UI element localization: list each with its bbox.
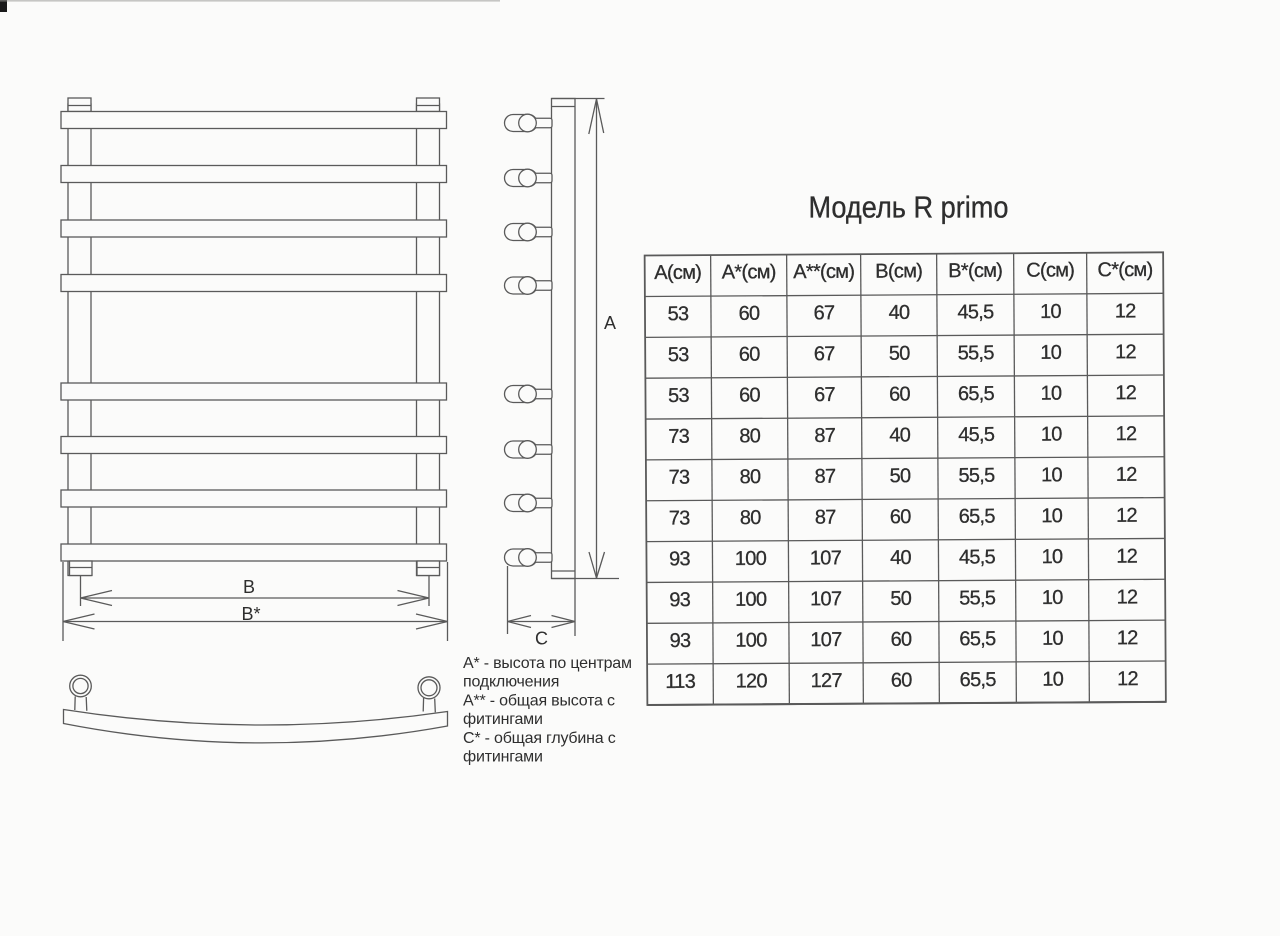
svg-text:10: 10 <box>1042 669 1064 691</box>
svg-text:60: 60 <box>889 383 911 405</box>
svg-text:40: 40 <box>888 302 910 324</box>
svg-text:А*(см): А*(см) <box>722 261 776 283</box>
svg-text:12: 12 <box>1115 341 1137 363</box>
svg-text:73: 73 <box>668 426 690 448</box>
svg-text:45,5: 45,5 <box>957 301 994 323</box>
svg-text:60: 60 <box>738 303 760 325</box>
svg-text:65,5: 65,5 <box>959 628 996 650</box>
svg-text:40: 40 <box>889 424 911 446</box>
svg-text:С(см): С(см) <box>1026 259 1074 281</box>
svg-text:60: 60 <box>891 669 913 691</box>
svg-text:12: 12 <box>1115 300 1137 322</box>
svg-text:87: 87 <box>815 507 837 529</box>
svg-text:12: 12 <box>1116 545 1138 567</box>
svg-text:12: 12 <box>1116 586 1138 608</box>
svg-text:53: 53 <box>668 385 690 407</box>
svg-text:100: 100 <box>735 589 767 611</box>
svg-text:45,5: 45,5 <box>958 424 995 446</box>
svg-text:12: 12 <box>1115 423 1137 445</box>
svg-text:55,5: 55,5 <box>958 342 995 364</box>
svg-text:10: 10 <box>1040 342 1062 364</box>
svg-text:50: 50 <box>890 588 912 610</box>
svg-text:10: 10 <box>1042 587 1064 609</box>
svg-text:65,5: 65,5 <box>958 383 995 405</box>
svg-text:107: 107 <box>810 588 842 610</box>
svg-text:67: 67 <box>813 302 835 324</box>
svg-text:55,5: 55,5 <box>959 587 996 609</box>
svg-text:127: 127 <box>811 670 843 692</box>
svg-text:10: 10 <box>1041 464 1063 486</box>
svg-text:53: 53 <box>667 303 689 325</box>
svg-text:80: 80 <box>739 466 761 488</box>
svg-text:A: A <box>604 313 616 333</box>
svg-text:10: 10 <box>1040 383 1062 405</box>
svg-text:113: 113 <box>665 671 695 693</box>
svg-text:C: C <box>535 629 548 649</box>
svg-text:В*(см): В*(см) <box>948 260 1002 282</box>
svg-text:65,5: 65,5 <box>960 669 997 691</box>
svg-text:С* - общая глубина с: С* - общая глубина с <box>463 730 616 747</box>
svg-text:Модель R primo: Модель R primo <box>809 190 1009 225</box>
svg-text:12: 12 <box>1116 464 1138 486</box>
svg-text:55,5: 55,5 <box>958 465 995 487</box>
svg-text:73: 73 <box>669 507 691 529</box>
svg-text:87: 87 <box>814 425 836 447</box>
svg-text:подключения: подключения <box>463 674 559 691</box>
svg-text:10: 10 <box>1041 423 1063 445</box>
svg-text:60: 60 <box>739 344 761 366</box>
svg-text:40: 40 <box>890 547 912 569</box>
svg-text:60: 60 <box>890 629 912 651</box>
svg-text:53: 53 <box>668 344 690 366</box>
svg-text:B: B <box>243 577 255 597</box>
svg-text:50: 50 <box>889 465 911 487</box>
svg-text:B*: B* <box>241 604 260 624</box>
svg-text:93: 93 <box>669 589 691 611</box>
svg-text:107: 107 <box>810 629 842 651</box>
svg-text:А* - высота по центрам: А* - высота по центрам <box>463 655 632 672</box>
svg-text:65,5: 65,5 <box>959 506 996 528</box>
svg-text:С*(см): С*(см) <box>1097 259 1152 281</box>
svg-text:67: 67 <box>814 384 836 406</box>
svg-text:60: 60 <box>739 384 761 406</box>
svg-text:100: 100 <box>735 548 767 570</box>
svg-text:87: 87 <box>814 466 836 488</box>
svg-text:80: 80 <box>740 507 762 529</box>
svg-text:120: 120 <box>736 670 768 692</box>
svg-text:73: 73 <box>668 467 690 489</box>
svg-text:12: 12 <box>1117 668 1139 690</box>
svg-text:10: 10 <box>1040 301 1062 323</box>
svg-text:фитингами: фитингами <box>463 749 543 766</box>
svg-text:12: 12 <box>1115 382 1137 404</box>
svg-text:В(см): В(см) <box>875 260 922 282</box>
svg-text:12: 12 <box>1116 505 1138 527</box>
svg-text:10: 10 <box>1041 546 1063 568</box>
svg-text:10: 10 <box>1041 505 1063 527</box>
svg-text:А** - общая высота с: А** - общая высота с <box>463 692 615 709</box>
svg-text:93: 93 <box>669 548 691 570</box>
svg-text:100: 100 <box>735 629 767 651</box>
svg-text:60: 60 <box>890 506 912 528</box>
svg-text:12: 12 <box>1117 627 1139 649</box>
svg-text:67: 67 <box>814 343 836 365</box>
svg-text:107: 107 <box>810 547 842 569</box>
svg-text:А**(см): А**(см) <box>793 261 854 283</box>
svg-text:А(см): А(см) <box>654 262 701 284</box>
svg-text:45,5: 45,5 <box>959 546 996 568</box>
svg-text:10: 10 <box>1042 628 1064 650</box>
svg-text:фитингами: фитингами <box>463 711 543 728</box>
svg-text:80: 80 <box>739 425 761 447</box>
svg-text:93: 93 <box>669 630 691 652</box>
svg-text:50: 50 <box>889 343 911 365</box>
